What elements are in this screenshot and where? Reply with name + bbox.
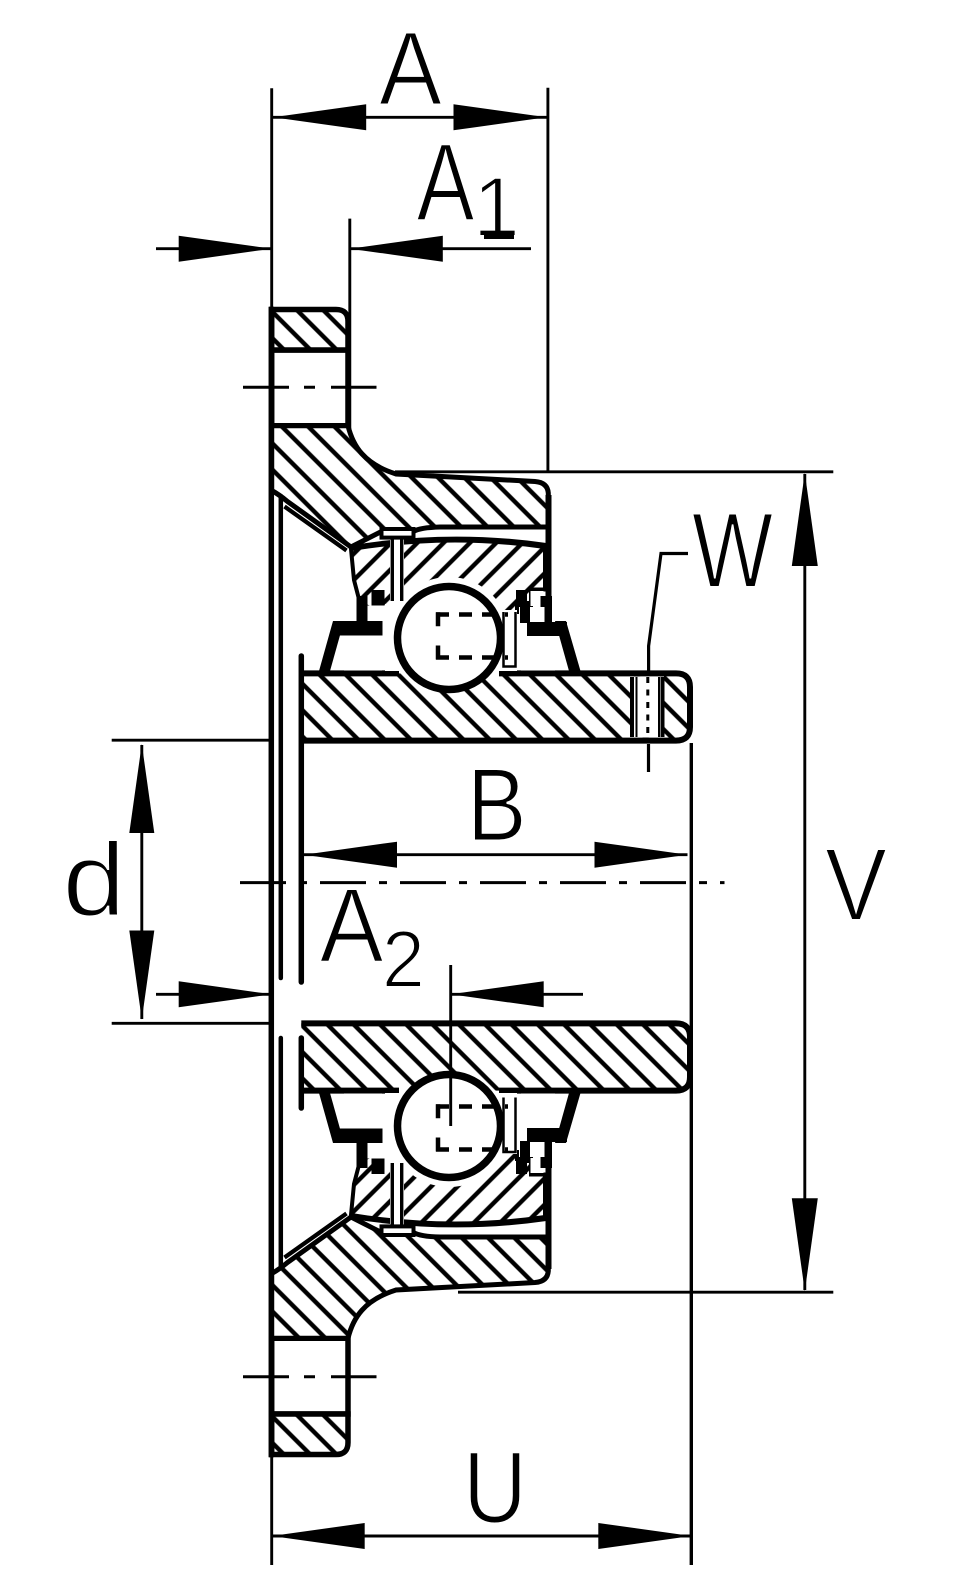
svg-text:A: A <box>417 121 475 244</box>
svg-text:B: B <box>467 748 527 864</box>
svg-text:A: A <box>320 867 384 985</box>
svg-text:V: V <box>825 827 887 942</box>
svg-text:1: 1 <box>473 160 520 254</box>
svg-text:A: A <box>379 11 442 128</box>
svg-text:d: d <box>63 822 126 938</box>
svg-text:U: U <box>463 1431 527 1545</box>
svg-text:2: 2 <box>382 915 425 1005</box>
svg-text:W: W <box>692 490 773 610</box>
